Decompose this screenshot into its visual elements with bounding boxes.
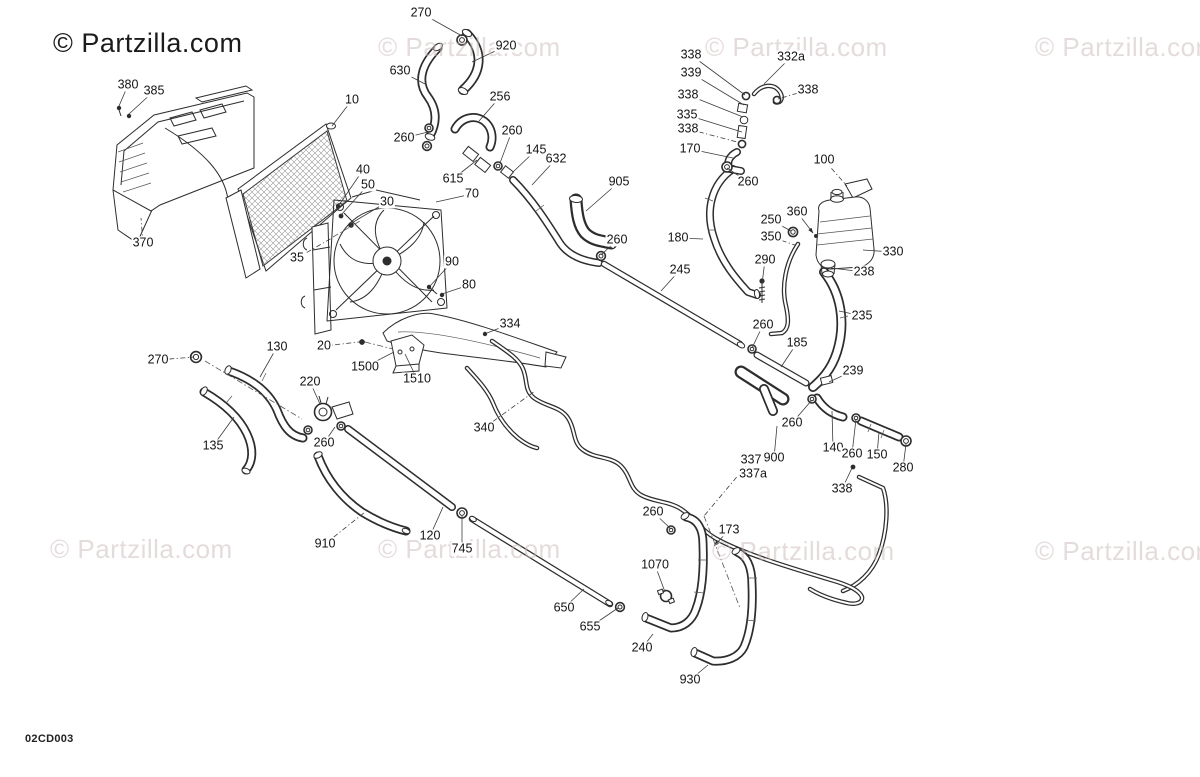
part-callout-180: 180: [667, 231, 690, 244]
part-callout-270: 270: [410, 6, 433, 19]
part-callout-173: 173: [718, 523, 741, 536]
partzilla-watermark: © Partzilla.com: [378, 34, 561, 60]
lower-duct-art: [383, 313, 566, 373]
part-callout-380: 380: [117, 78, 140, 91]
part-callout-337: 337: [740, 453, 763, 466]
part-callout-337a: 337a: [738, 467, 768, 480]
part-callout-330: 330: [882, 245, 905, 258]
part-callout-905: 905: [608, 175, 631, 188]
part-callout-910: 910: [314, 537, 337, 550]
part-callout-260: 260: [781, 416, 804, 429]
part-callout-135: 135: [202, 439, 225, 452]
part-callout-120: 120: [419, 529, 442, 542]
part-callout-920: 920: [495, 39, 518, 52]
part-callout-1070: 1070: [640, 558, 670, 571]
part-callout-50: 50: [360, 178, 376, 191]
part-callout-632: 632: [545, 152, 568, 165]
part-callout-350: 350: [760, 230, 783, 243]
part-callout-239: 239: [842, 364, 865, 377]
part-callout-650: 650: [553, 601, 576, 614]
part-callout-270: 270: [147, 353, 170, 366]
part-callout-80: 80: [461, 278, 477, 291]
partzilla-watermark: © Partzilla.com: [1035, 538, 1200, 564]
part-callout-338: 338: [797, 83, 820, 96]
part-callout-335: 335: [676, 108, 699, 121]
part-callout-930: 930: [679, 673, 702, 686]
part-callout-332a: 332a: [776, 50, 806, 63]
part-callout-339: 339: [680, 66, 703, 79]
part-callout-256: 256: [489, 90, 512, 103]
part-callout-338: 338: [680, 48, 703, 61]
part-callout-170: 170: [679, 142, 702, 155]
part-callout-900: 900: [763, 451, 786, 464]
part-callout-615: 615: [442, 172, 465, 185]
part-callout-334: 334: [499, 317, 522, 330]
part-callout-338: 338: [677, 122, 700, 135]
part-callout-235: 235: [851, 309, 874, 322]
part-callout-655: 655: [579, 620, 602, 633]
part-callout-290: 290: [754, 253, 777, 266]
part-callout-30: 30: [379, 195, 395, 208]
part-callout-338: 338: [831, 482, 854, 495]
part-callout-1510: 1510: [402, 372, 432, 385]
part-callout-745: 745: [451, 542, 474, 555]
part-callout-260: 260: [606, 233, 629, 246]
part-callout-100: 100: [813, 153, 836, 166]
part-callout-260: 260: [313, 436, 336, 449]
part-callout-185: 185: [786, 336, 809, 349]
part-callout-260: 260: [501, 124, 524, 137]
cooling-system-diagram-art: [0, 0, 1200, 777]
part-callout-40: 40: [355, 163, 371, 176]
part-callout-260: 260: [393, 131, 416, 144]
part-callout-385: 385: [143, 84, 166, 97]
part-callout-338: 338: [677, 88, 700, 101]
part-callout-245: 245: [669, 263, 692, 276]
parts-diagram-page: © Partzilla.com© Partzilla.com© Partzill…: [0, 0, 1200, 777]
part-callout-130: 130: [266, 340, 289, 353]
part-callout-250: 250: [760, 213, 783, 226]
partzilla-logo: © Partzilla.com: [53, 30, 242, 57]
part-callout-238: 238: [853, 265, 876, 278]
partzilla-watermark: © Partzilla.com: [1035, 34, 1200, 60]
part-callout-90: 90: [444, 255, 460, 268]
part-callout-260: 260: [642, 505, 665, 518]
part-callout-280: 280: [892, 461, 915, 474]
partzilla-watermark: © Partzilla.com: [50, 536, 233, 562]
part-callout-1500: 1500: [350, 360, 380, 373]
part-callout-10: 10: [344, 93, 360, 106]
part-callout-260: 260: [752, 318, 775, 331]
partzilla-watermark: © Partzilla.com: [712, 538, 895, 564]
part-callout-150: 150: [866, 448, 889, 461]
part-callout-260: 260: [841, 447, 864, 460]
part-callout-630: 630: [389, 64, 412, 77]
part-callout-340: 340: [473, 421, 496, 434]
part-callout-70: 70: [464, 187, 480, 200]
diagram-code: 02CD003: [25, 733, 74, 745]
part-callout-360: 360: [786, 205, 809, 218]
part-callout-35: 35: [289, 251, 305, 264]
part-callout-220: 220: [299, 375, 322, 388]
part-callout-240: 240: [631, 641, 654, 654]
part-callout-260: 260: [737, 175, 760, 188]
part-callout-20: 20: [316, 339, 332, 352]
part-callout-370: 370: [132, 236, 155, 249]
